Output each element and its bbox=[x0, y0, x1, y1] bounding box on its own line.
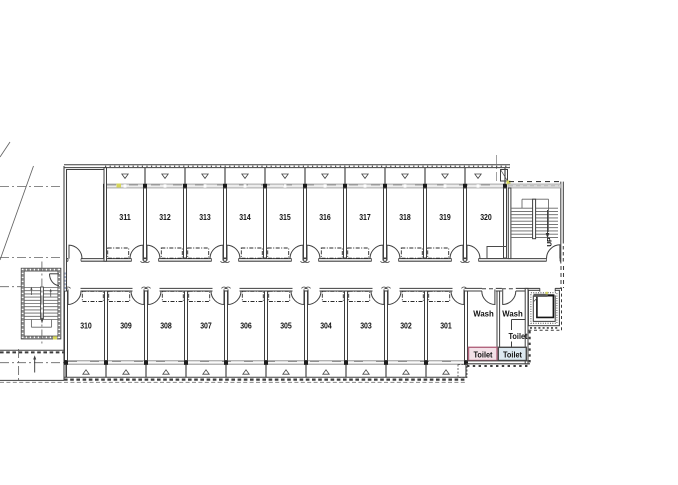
svg-text:303: 303 bbox=[360, 321, 372, 331]
svg-text:304: 304 bbox=[320, 321, 332, 331]
svg-text:316: 316 bbox=[319, 212, 331, 222]
svg-text:313: 313 bbox=[199, 212, 211, 222]
svg-text:Wash: Wash bbox=[502, 310, 523, 319]
svg-text:309: 309 bbox=[120, 321, 132, 331]
svg-text:Wash: Wash bbox=[473, 310, 494, 319]
svg-text:318: 318 bbox=[399, 212, 411, 222]
svg-text:305: 305 bbox=[280, 321, 292, 331]
svg-text:311: 311 bbox=[119, 212, 131, 222]
svg-text:302: 302 bbox=[400, 321, 412, 331]
svg-text:Toilet: Toilet bbox=[474, 351, 493, 360]
svg-text:312: 312 bbox=[159, 212, 171, 222]
svg-text:Toilet: Toilet bbox=[509, 332, 528, 341]
svg-text:UP: UP bbox=[546, 237, 553, 247]
svg-text:317: 317 bbox=[359, 212, 371, 222]
svg-text:306: 306 bbox=[240, 321, 252, 331]
svg-text:308: 308 bbox=[160, 321, 172, 331]
svg-text:314: 314 bbox=[239, 212, 251, 222]
svg-text:307: 307 bbox=[200, 321, 212, 331]
svg-text:310: 310 bbox=[80, 321, 92, 331]
svg-text:301: 301 bbox=[440, 321, 452, 331]
svg-text:Toilet: Toilet bbox=[503, 351, 522, 360]
svg-text:315: 315 bbox=[279, 212, 291, 222]
svg-text:319: 319 bbox=[439, 212, 451, 222]
svg-text:320: 320 bbox=[480, 212, 492, 222]
